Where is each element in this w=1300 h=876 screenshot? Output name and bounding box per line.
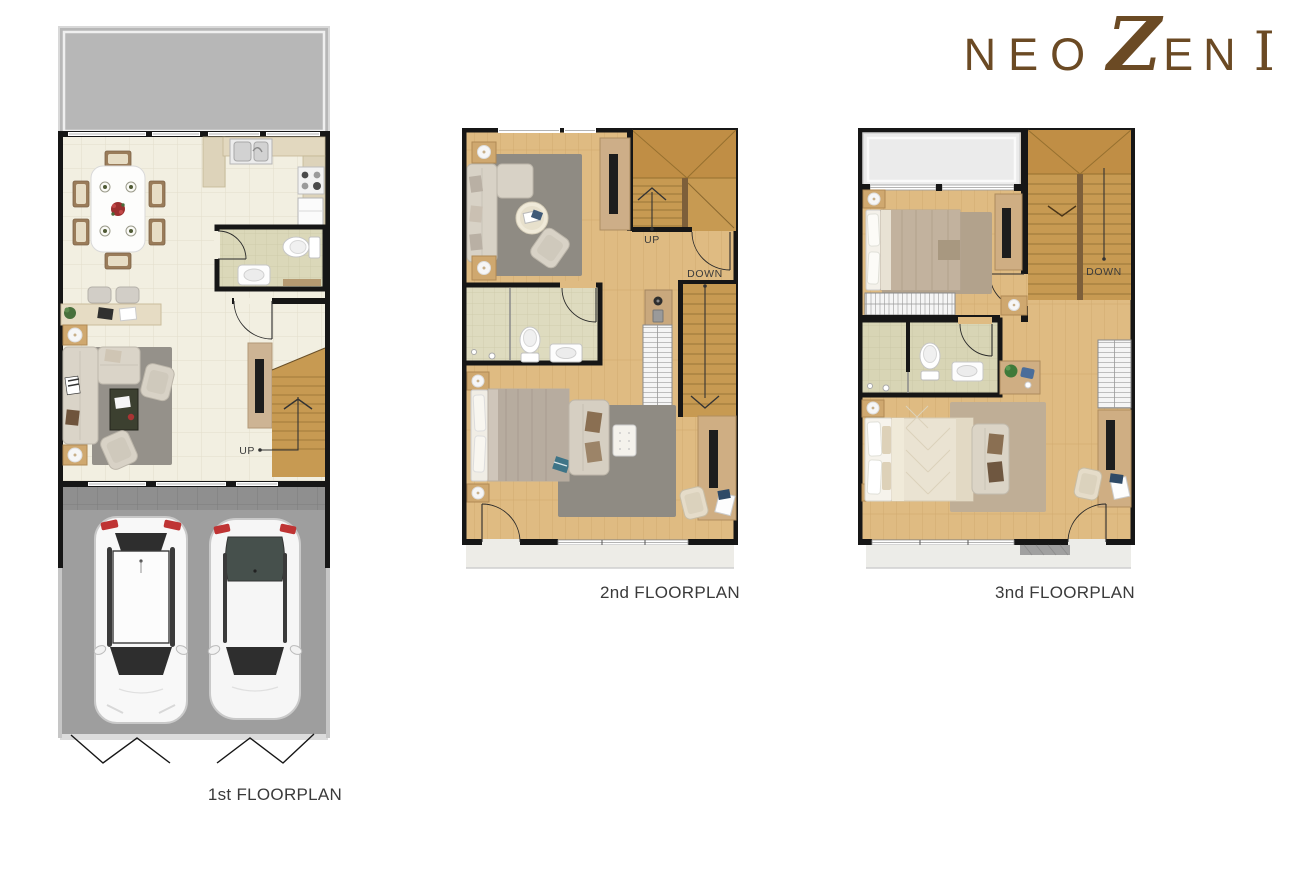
side-table-lamp [63,325,87,345]
windows [498,128,596,133]
floorplan-2-label: 2nd FLOORPLAN [540,583,800,603]
kitchen-sink [230,139,272,164]
down-label: DOWN [687,268,723,280]
coffee-table [110,389,138,430]
stove [298,167,324,194]
tv-console [248,343,272,428]
floorplan-3: DOWN [858,128,1135,570]
wardrobe [1098,340,1131,408]
logo-word-en: EN [1163,29,1246,81]
brand-logo: NEO Z EN I [925,16,1275,83]
bath-sink [952,362,983,381]
round-coffee-table [516,202,548,234]
balcony-floor [466,545,734,568]
floorplan-sheet: NEO Z EN I [0,0,1300,876]
bath-sink [550,344,582,362]
speaker-table [863,190,885,208]
stairs-upper [627,130,736,232]
toilet [920,343,940,380]
tv-console [995,194,1022,270]
tv-console [600,138,630,230]
floorplan-3-label: 3nd FLOORPLAN [935,583,1195,603]
terrace [59,27,329,136]
floorplan-1: UP [58,25,330,770]
bath-sink [238,265,270,285]
bathroom [214,227,325,289]
car-1 [93,517,189,723]
double-bed [471,389,570,481]
stairs-down-well [1021,130,1131,322]
ottoman [613,425,636,456]
family-area [467,142,582,280]
stairs-down [678,280,736,417]
logo-letter-z: Z [1107,16,1161,75]
console-table [1001,296,1027,315]
toilet [283,237,320,258]
logo-word-neo: NEO [964,29,1098,81]
up-label: UP [239,445,255,457]
centerpiece-flowers [111,202,125,216]
refrigerator [298,198,323,225]
hall-table [1000,361,1040,394]
foot-sofa [569,400,609,475]
toilet [520,327,540,362]
nightstand-lamp [467,372,489,390]
front-balcony [860,133,1024,191]
hall-cabinet [645,290,672,325]
speaker-table [472,256,496,280]
wardrobe [865,293,955,315]
balcony-floor [866,545,1131,568]
floorplan-1-label: 1st FLOORPLAN [145,785,405,805]
nightstand-lamp [467,484,489,502]
down-label: DOWN [1086,266,1122,278]
side-table-lamp [63,445,87,465]
logo-numeral-i: I [1254,20,1275,83]
nightstand-lamp [862,400,884,417]
master-bed [865,406,973,501]
bathroom [464,281,600,363]
car-2 [207,519,303,719]
bath-shelf [283,279,321,286]
speaker-table [472,142,496,163]
double-bed [866,210,960,290]
floorplan-2: UP DOWN [462,128,738,570]
up-label: UP [644,234,660,246]
shelving-unit [643,325,672,417]
foot-sofa [972,424,1009,494]
bathroom [860,317,1000,395]
